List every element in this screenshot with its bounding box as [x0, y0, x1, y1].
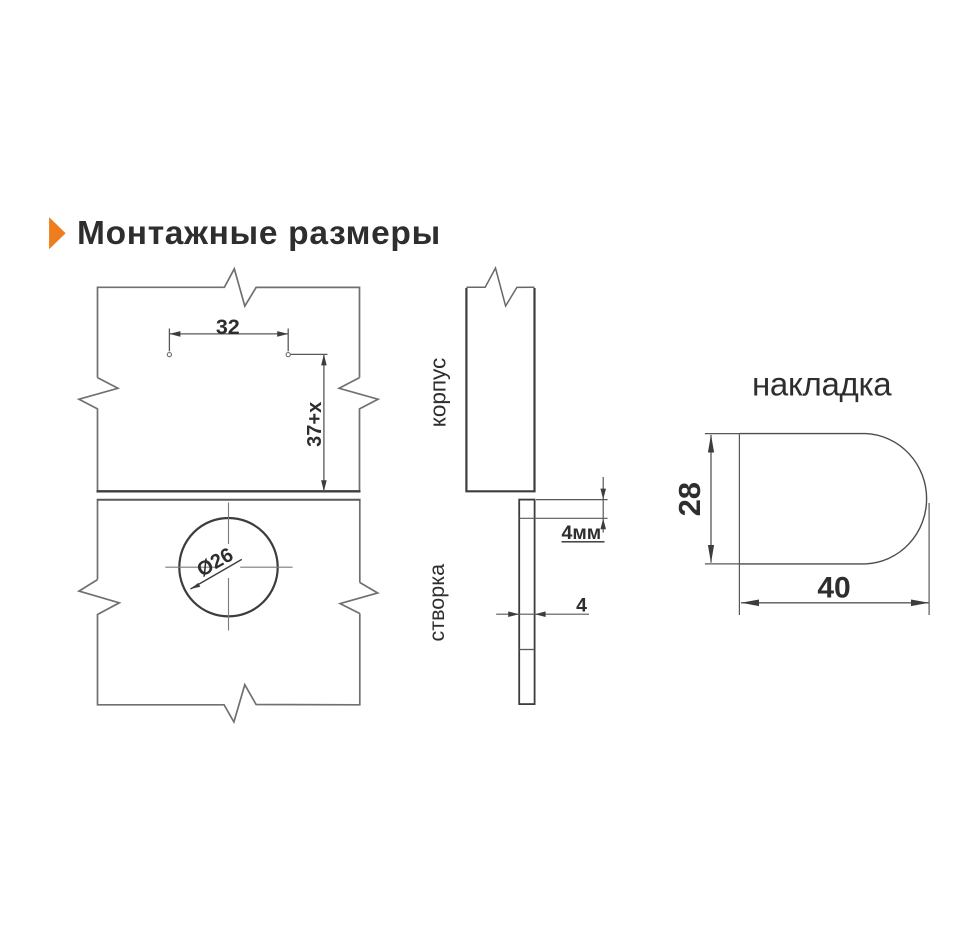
- svg-text:28: 28: [672, 482, 707, 516]
- svg-text:Монтажные размеры: Монтажные размеры: [77, 215, 441, 252]
- svg-text:накладка: накладка: [752, 366, 892, 403]
- svg-text:корпус: корпус: [425, 358, 450, 428]
- svg-text:4мм: 4мм: [562, 522, 602, 544]
- svg-text:40: 40: [817, 572, 850, 605]
- svg-text:створка: створка: [425, 564, 449, 642]
- svg-text:32: 32: [216, 315, 240, 339]
- svg-text:4: 4: [576, 595, 587, 617]
- svg-text:37+x: 37+x: [304, 402, 326, 447]
- svg-text:Ø26: Ø26: [193, 544, 237, 582]
